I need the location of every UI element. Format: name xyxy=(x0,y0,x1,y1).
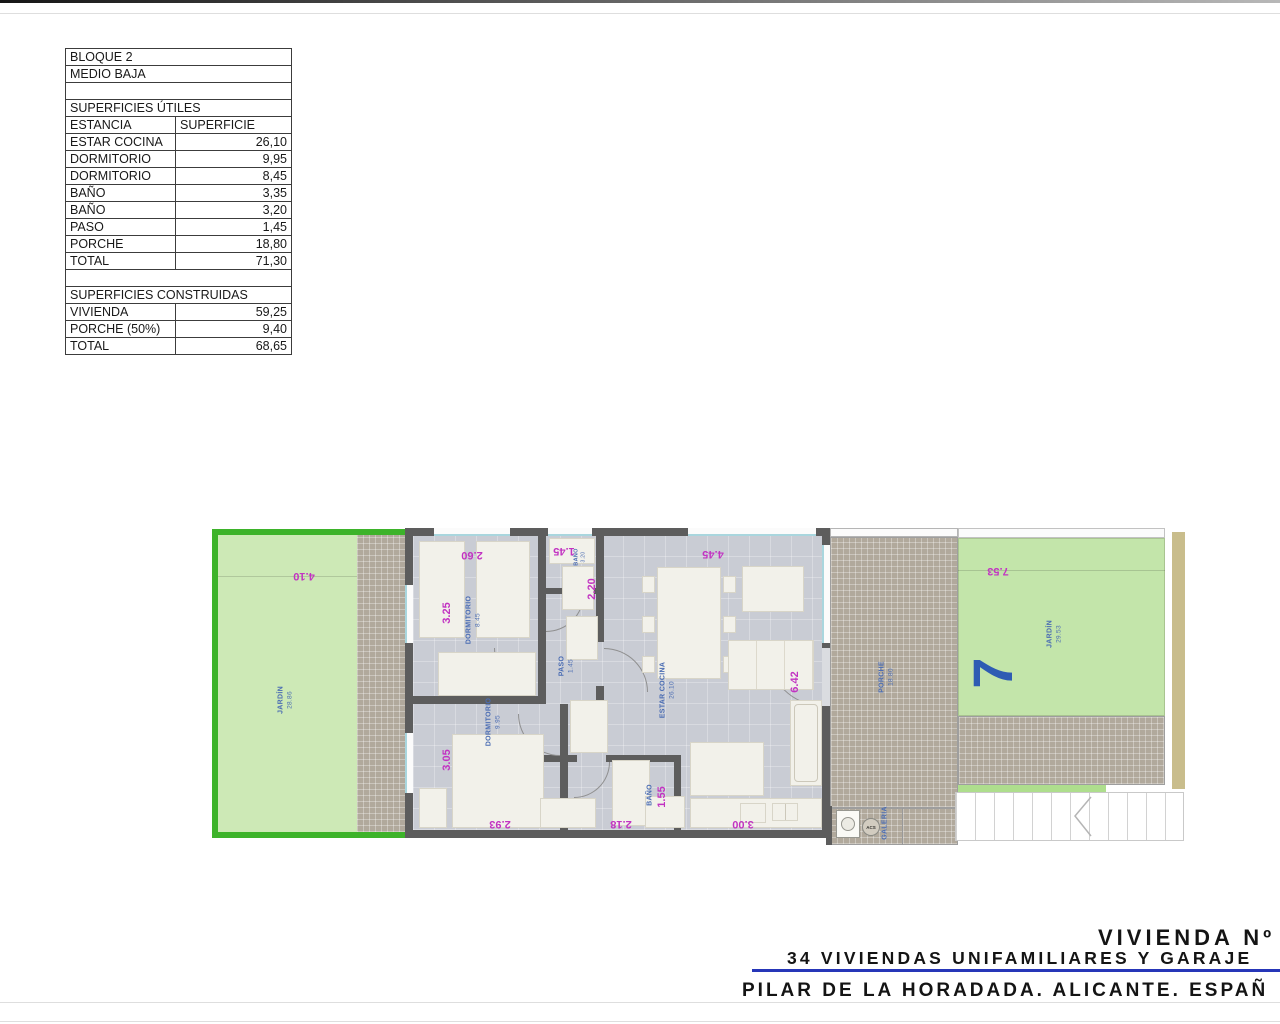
closet xyxy=(570,700,608,753)
wardrobe xyxy=(438,652,536,696)
project-name: 34 VIVIENDAS UNIFAMILIARES Y GARAJE xyxy=(787,948,1252,969)
unit-number: 7 xyxy=(965,657,1021,688)
drawing-sheet: BLOQUE 2 MEDIO BAJA SUPERFICIES ÚTILES E… xyxy=(0,0,1280,1024)
dimension: 3.00 xyxy=(732,818,753,830)
chair xyxy=(723,576,736,593)
wall xyxy=(413,696,546,704)
dimension: 6.42 xyxy=(789,671,801,692)
bathtub xyxy=(790,700,822,786)
table-section-utiles: SUPERFICIES ÚTILES xyxy=(66,100,292,117)
sheet-bottom-rule xyxy=(0,1002,1280,1003)
dimension: 4.45 xyxy=(702,548,723,560)
chair xyxy=(642,616,655,633)
table-cell-value: 9,95 xyxy=(176,151,292,168)
table-cell-value: 71,30 xyxy=(176,253,292,270)
table-cell-floor: MEDIO BAJA xyxy=(66,66,292,83)
sheet-top-edge xyxy=(0,0,1280,3)
table-cell-value: 26,10 xyxy=(176,134,292,151)
table-cell: DORMITORIO xyxy=(66,151,176,168)
column-header-superficie: SUPERFICIE xyxy=(176,117,292,134)
table-cell-empty xyxy=(66,83,292,100)
chair xyxy=(723,616,736,633)
garden-left xyxy=(218,535,357,832)
dimension: 1.45 xyxy=(553,545,574,557)
table-cell: DORMITORIO xyxy=(66,168,176,185)
table-cell-value: 18,80 xyxy=(176,236,292,253)
table-cell: BAÑO xyxy=(66,185,176,202)
project-location: PILAR DE LA HORADADA. ALICANTE. ESPAÑ xyxy=(742,980,1268,1002)
dimension: 1.55 xyxy=(656,786,668,807)
sideboard xyxy=(742,566,804,612)
window xyxy=(405,585,413,643)
chair xyxy=(642,656,655,673)
window xyxy=(822,545,830,643)
dimension: 2.60 xyxy=(461,549,482,561)
hall-label: PASO1.45 xyxy=(559,656,576,677)
table-cell: TOTAL xyxy=(66,253,176,270)
wall xyxy=(538,536,546,698)
porch-label: PORCHE18.80 xyxy=(879,661,896,693)
bedroom-bottom-label: DORMITORIO9.95 xyxy=(486,698,503,746)
bedroom-top-label: DORMITORIO8.45 xyxy=(466,596,483,644)
table-cell-block: BLOQUE 2 xyxy=(66,49,292,66)
kitchen-peninsula xyxy=(690,742,764,796)
bed xyxy=(476,541,530,638)
garden-right-label: JARDÍN29.53 xyxy=(1047,620,1064,648)
table-cell: PORCHE (50%) xyxy=(66,321,176,338)
table-cell-value: 3,20 xyxy=(176,202,292,219)
dimension: 2.20 xyxy=(586,578,598,599)
title-divider-rule xyxy=(752,969,1280,972)
garden-left-fence-south xyxy=(212,832,405,838)
dimension: 2.18 xyxy=(610,818,631,830)
table-cell: ESTAR COCINA xyxy=(66,134,176,151)
dimension: 2.93 xyxy=(489,818,510,830)
nightstand xyxy=(419,788,447,828)
table-cell: PASO xyxy=(66,219,176,236)
window xyxy=(405,733,413,793)
table-cell-empty xyxy=(66,270,292,287)
wall-stub xyxy=(826,806,832,845)
door-opening xyxy=(822,648,830,706)
hall-closet xyxy=(566,616,598,660)
driveway-stairs xyxy=(955,792,1184,841)
galeria-divider xyxy=(902,808,903,845)
terrace-strip-left xyxy=(357,535,405,832)
sofa xyxy=(728,640,814,690)
surface-area-table: BLOQUE 2 MEDIO BAJA SUPERFICIES ÚTILES E… xyxy=(65,48,292,355)
acs-heater-icon: ACS xyxy=(862,818,880,836)
bathroom-fixture xyxy=(540,798,596,828)
table-cell-value: 8,45 xyxy=(176,168,292,185)
sheet-bottom-edge xyxy=(0,1021,1280,1022)
column-header-estancia: ESTANCIA xyxy=(66,117,176,134)
dimension: 4.10 xyxy=(293,570,314,582)
chair xyxy=(642,576,655,593)
kitchen-sink xyxy=(772,803,798,821)
garden-strip xyxy=(958,785,1106,792)
window xyxy=(688,528,816,536)
dimension: 3.25 xyxy=(441,602,453,623)
garden-left-fence-north xyxy=(212,529,405,535)
bed xyxy=(452,734,544,828)
terrace-strip-right xyxy=(958,716,1165,785)
living-kitchen-label: ESTAR COCINA26.10 xyxy=(660,662,677,718)
boundary-wall xyxy=(1172,532,1185,789)
bathroom-bottom-label: BAÑO xyxy=(647,784,656,806)
table-cell: PORCHE xyxy=(66,236,176,253)
washing-machine-icon xyxy=(836,810,860,838)
sheet-top-rule xyxy=(0,13,1280,14)
table-cell: BAÑO xyxy=(66,202,176,219)
garden-left-label: JARDÍN28.86 xyxy=(278,686,295,714)
table-cell-value: 59,25 xyxy=(176,304,292,321)
fence-edge-north xyxy=(958,528,1165,538)
galeria-label: GALERIA xyxy=(882,806,891,840)
table-cell-value: 68,65 xyxy=(176,338,292,355)
garden-left-boundary-line xyxy=(218,576,357,577)
table-section-construidas: SUPERFICIES CONSTRUIDAS xyxy=(66,287,292,304)
window xyxy=(548,528,592,536)
pergola-edge xyxy=(830,528,958,537)
direction-arrow-icon xyxy=(1072,795,1094,838)
table-cell: VIVIENDA xyxy=(66,304,176,321)
table-cell-value: 9,40 xyxy=(176,321,292,338)
bathroom-top-label: BAÑO3.20 xyxy=(573,548,586,565)
table-cell-value: 1,45 xyxy=(176,219,292,236)
table-cell-value: 3,35 xyxy=(176,185,292,202)
window xyxy=(434,528,510,536)
dimension: 7.53 xyxy=(987,565,1008,577)
table-cell: TOTAL xyxy=(66,338,176,355)
dimension: 3.05 xyxy=(441,749,453,770)
